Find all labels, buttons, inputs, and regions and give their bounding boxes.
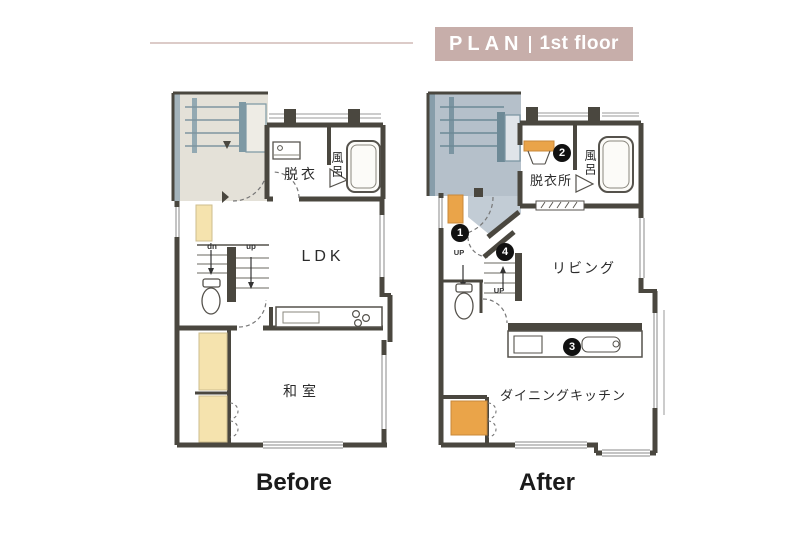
storage-highlight — [451, 401, 487, 435]
room-label-ldk: LDK — [293, 248, 353, 266]
header-divider — [529, 36, 531, 53]
marker-badge-4: 4 — [496, 243, 514, 261]
stair-label-up-before: up — [241, 242, 261, 251]
before-floorplan-drawing — [163, 85, 403, 465]
before-caption: Before — [219, 469, 369, 497]
bathtub-icon — [599, 137, 633, 192]
hall-door-arc — [239, 300, 266, 327]
toilet-icon — [455, 284, 473, 319]
hall-closet — [196, 205, 212, 241]
washroom-block — [267, 109, 383, 203]
after-caption: After — [472, 469, 622, 497]
toilet-icon — [202, 279, 220, 314]
closet — [451, 401, 496, 437]
washroom-block — [520, 107, 641, 210]
header-rule — [150, 42, 413, 44]
vanity-highlight — [524, 141, 554, 164]
header-title: PLAN — [449, 33, 523, 56]
room-label-dressing-before: 脱衣 — [277, 164, 325, 184]
kitchen-sink-icon — [283, 312, 319, 323]
room-label-bath-after: 風呂 — [582, 138, 599, 188]
stair-label-dn: dn — [202, 242, 222, 251]
kitchen-counter — [276, 307, 382, 327]
room-label-dining-kitchen: ダイニングキッチン — [493, 385, 633, 404]
bathtub-icon — [347, 141, 380, 192]
window — [437, 198, 445, 228]
closet-door-arc — [230, 403, 238, 437]
stair-label-up2: UP — [489, 286, 509, 295]
marker-badge-2: 2 — [553, 144, 571, 162]
room-label-living: リビング — [545, 258, 623, 278]
entrance-area — [173, 93, 268, 241]
stove-icon — [514, 336, 542, 353]
closet — [199, 333, 238, 442]
toilet-door-arc — [483, 299, 507, 323]
marker-badge-1: 1 — [451, 224, 469, 242]
stair-label-up1: UP — [449, 248, 469, 257]
room-label-dressing-after: 脱衣所 — [518, 170, 584, 189]
plan-header: PLAN 1st floor — [435, 27, 633, 61]
page: PLAN 1st floor — [0, 0, 800, 533]
marker-badge-3: 3 — [563, 338, 581, 356]
room-label-japanese-room: 和室 — [272, 381, 332, 401]
entrance-bench-highlight — [448, 195, 463, 223]
kitchen-sink-icon — [582, 337, 620, 352]
room-label-bath-before: 風呂 — [329, 141, 346, 189]
closet-door-arc — [488, 403, 496, 437]
header-subtitle: 1st floor — [540, 33, 619, 55]
sink-icon — [273, 142, 300, 159]
